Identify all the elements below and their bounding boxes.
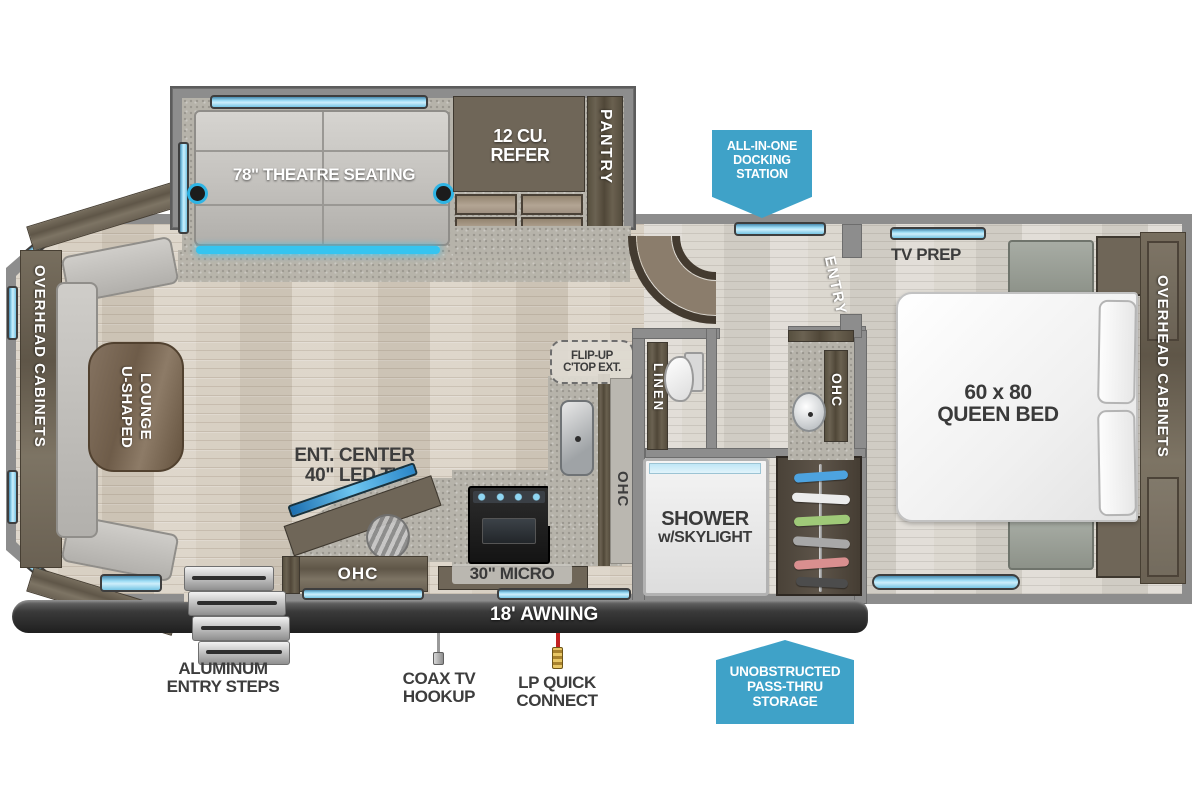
kitchen-drawer <box>521 194 583 215</box>
lp-wire <box>556 633 560 648</box>
shower-skylight <box>649 463 761 474</box>
steps-curve <box>628 234 716 334</box>
window <box>497 588 631 600</box>
cabinet-door <box>1147 477 1179 577</box>
window <box>302 588 424 600</box>
kitchen-drawer <box>455 194 517 215</box>
range-cooktop <box>468 486 550 564</box>
pillow <box>1097 410 1137 517</box>
hanger <box>794 557 849 570</box>
lp-connector-icon <box>552 647 563 669</box>
kitchen-ohc-band: OHC <box>610 378 634 564</box>
overhead-cabinets-left-label: OVERHEAD CABINETS <box>31 265 48 448</box>
range-knobs <box>473 491 545 503</box>
ohc-bottom-cabinet: OHC <box>288 556 428 592</box>
bed-bench-top <box>1008 240 1094 296</box>
pantry-label: PANTRY <box>596 109 614 185</box>
floorplan-diagram: OVERHEAD CABINETS U-SHAPED LOUNGE 78" TH… <box>0 0 1200 800</box>
shower: SHOWER w/SKYLIGHT <box>643 458 769 596</box>
vanity-ohc-band: OHC <box>824 350 848 442</box>
speaker-arc <box>366 514 410 560</box>
micro-label: 30" MICRO <box>452 564 572 584</box>
window <box>890 227 986 240</box>
linen-label: LINEN <box>651 363 666 412</box>
pass-thru-line1: UNOBSTRUCTED <box>716 664 854 679</box>
vanity-drain <box>808 412 813 417</box>
flip-up-line2: C'TOP EXT. <box>563 362 621 374</box>
hanger <box>794 470 848 483</box>
lounge-label-line1: U-SHAPED <box>118 366 135 448</box>
flip-up-line1: FLIP-UP <box>571 350 613 362</box>
pass-thru-callout: UNOBSTRUCTED PASS-THRU STORAGE <box>716 640 854 724</box>
theatre-seating-label: 78" THEATRE SEATING <box>204 166 444 184</box>
hanger <box>792 492 850 504</box>
wardrobe-rod <box>819 464 822 592</box>
lp-label: LP QUICK CONNECT <box>508 674 606 710</box>
docking-station-callout: ALL-IN-ONE DOCKING STATION <box>712 130 812 218</box>
tv-prep-label: TV PREP <box>878 246 974 264</box>
sofa-accent-light <box>196 246 440 254</box>
lp-text: LP QUICK CONNECT <box>516 673 597 710</box>
oven-window <box>482 518 536 544</box>
door-post <box>282 556 300 594</box>
nightstand-bottom <box>1096 516 1144 578</box>
wardrobe <box>776 456 862 596</box>
awning-bar: 18' AWNING <box>12 600 868 633</box>
sink-drain <box>575 436 581 442</box>
sink-counter-edge <box>598 374 610 566</box>
entry-wall-stub-top <box>842 224 862 258</box>
refrigerator-label: 12 CU. REFER <box>470 127 570 165</box>
shower-line1: SHOWER <box>646 509 764 530</box>
vanity-ohc-label: OHC <box>829 373 845 407</box>
refrigerator: 12 CU. REFER <box>453 96 585 192</box>
coax-text: COAX TV HOOKUP <box>403 669 476 706</box>
window <box>7 470 18 524</box>
coax-connector-icon <box>433 652 444 665</box>
lounge-label-line2: LOUNGE <box>137 373 154 440</box>
docking-callout-line1: ALL-IN-ONE <box>712 139 812 153</box>
shower-line2: w/SKYLIGHT <box>646 530 764 547</box>
window <box>7 286 18 340</box>
toilet-bowl <box>664 356 694 402</box>
window <box>210 95 428 109</box>
bed-size-line: 60 x 80 <box>918 382 1078 404</box>
entry-step <box>188 591 286 616</box>
bed-bench-bottom <box>1008 518 1094 570</box>
hanger <box>793 536 850 549</box>
cupholder-left <box>190 186 205 201</box>
kitchen-counter-top <box>453 226 631 256</box>
vanity-top-cabinet <box>788 330 854 342</box>
entry-step <box>184 566 274 591</box>
entry-steps-text: ALUMINUM ENTRY STEPS <box>167 659 280 696</box>
vanity-sink <box>792 392 826 432</box>
window <box>178 142 189 234</box>
window <box>872 574 1020 590</box>
coax-wire <box>437 633 440 653</box>
coax-label: COAX TV HOOKUP <box>392 670 486 706</box>
docking-callout-line2: DOCKING <box>712 153 812 167</box>
ohc-bottom-label: OHC <box>338 565 379 583</box>
entry-steps-label: ALUMINUM ENTRY STEPS <box>152 660 294 696</box>
pass-thru-line3: STORAGE <box>716 694 854 709</box>
pass-thru-line2: PASS-THRU <box>716 679 854 694</box>
nightstand-top <box>1096 236 1144 296</box>
kitchen-sink <box>560 400 594 476</box>
window <box>100 574 162 592</box>
overhead-cabinets-right-label: OVERHEAD CABINETS <box>1154 275 1171 458</box>
shower-label: SHOWER w/SKYLIGHT <box>646 509 764 547</box>
pantry: PANTRY <box>587 96 623 240</box>
bed-type-line: QUEEN BED <box>918 404 1078 426</box>
lounge-table: U-SHAPED LOUNGE <box>88 342 184 472</box>
pillow <box>1097 300 1137 405</box>
linen-cabinet: LINEN <box>647 342 668 450</box>
window <box>734 222 826 236</box>
entry-step <box>192 616 290 641</box>
toilet-room-wall-right <box>706 328 717 456</box>
awning-label: 18' AWNING <box>490 605 598 625</box>
cupholder-right <box>436 186 451 201</box>
hanger <box>796 577 848 589</box>
docking-callout-line3: STATION <box>712 167 812 181</box>
kitchen-ohc-label: OHC <box>614 471 630 507</box>
hanger <box>794 515 850 527</box>
overhead-cabinets-right: OVERHEAD CABINETS <box>1140 232 1186 584</box>
bed-label: 60 x 80 QUEEN BED <box>918 382 1078 427</box>
